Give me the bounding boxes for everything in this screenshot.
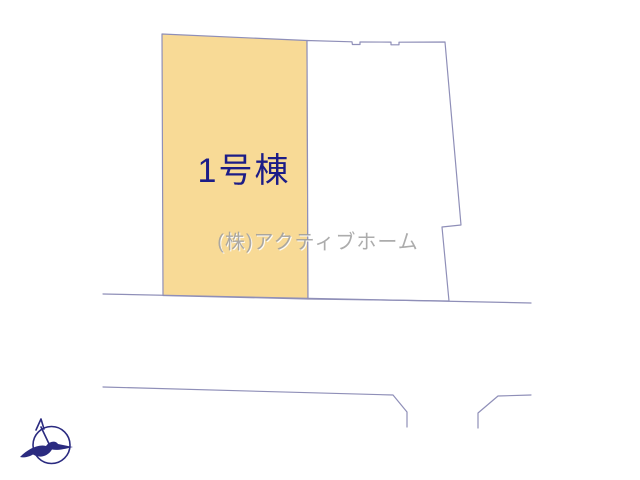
site-plan-drawing: 1号棟 (株)アクティブホーム (株)アクティブホーム	[0, 0, 640, 480]
lot-2-shape	[307, 41, 461, 302]
road-boundary-lower-right	[478, 395, 531, 428]
lot-1-label: 1号棟	[198, 152, 291, 190]
compass-bird-silhouette	[20, 442, 73, 458]
road-boundary-lower-left	[103, 387, 407, 427]
site-plan-canvas: 1号棟 (株)アクティブホーム (株)アクティブホーム	[0, 0, 640, 480]
north-compass-bird-icon	[20, 419, 73, 464]
watermark-text: (株)アクティブホーム	[217, 229, 419, 253]
